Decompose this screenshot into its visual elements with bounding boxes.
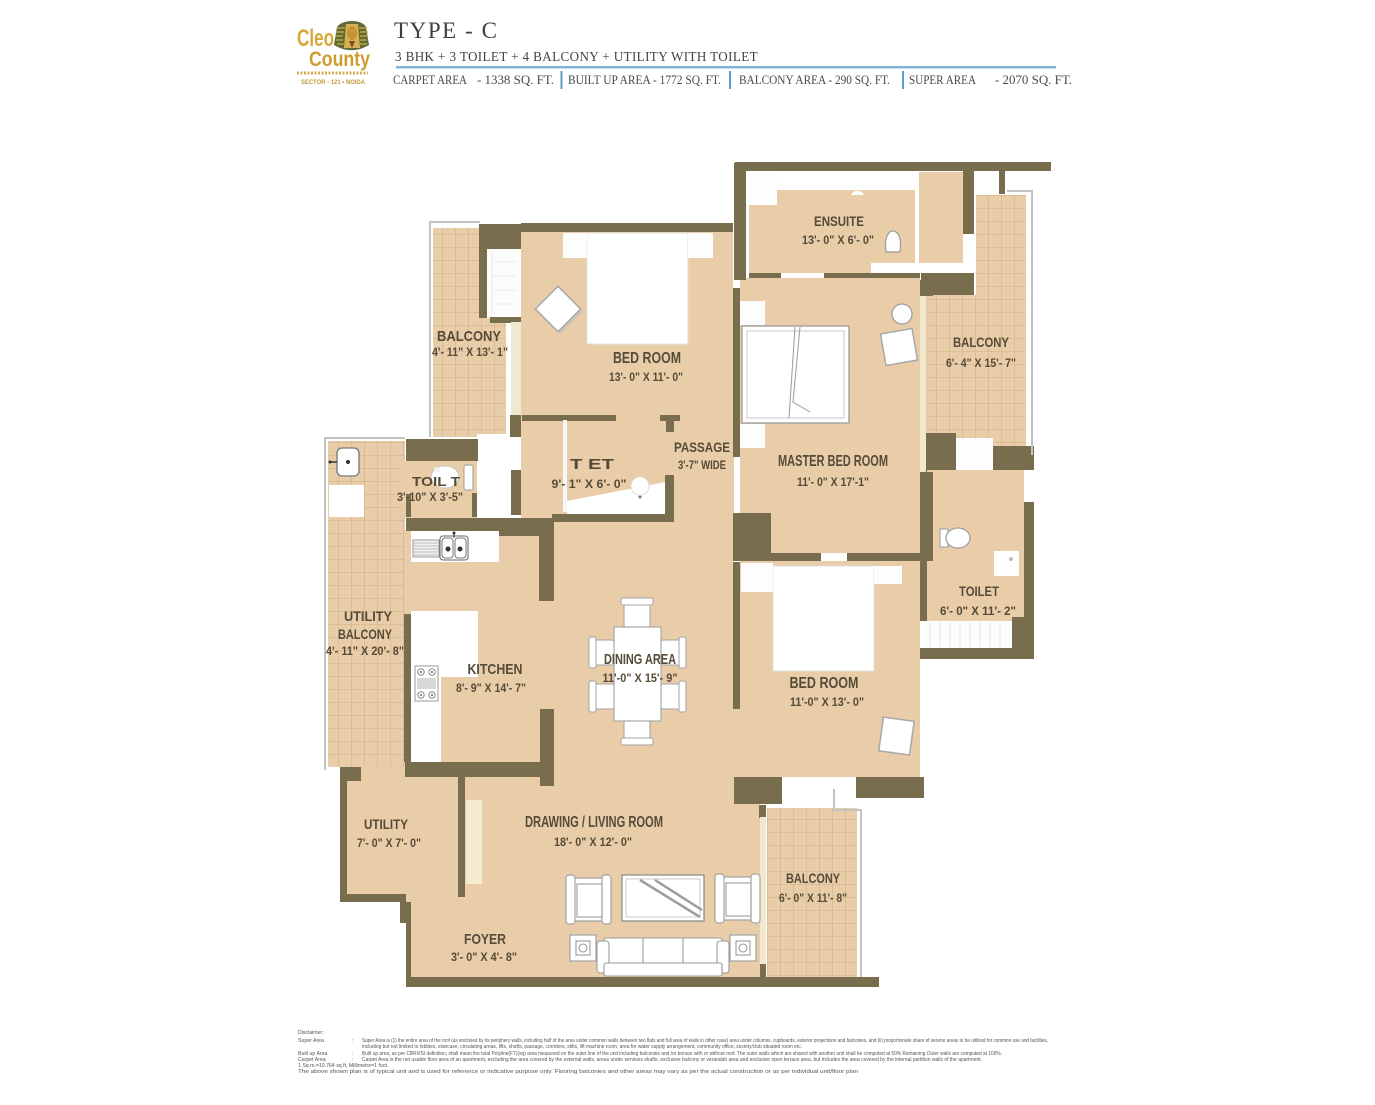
svg-text:Disclaimer:: Disclaimer: [298,1030,324,1036]
svg-text:13'- 0" X 11'- 0": 13'- 0" X 11'- 0" [609,370,683,384]
svg-text:MASTER BED ROOM: MASTER BED ROOM [778,453,888,470]
svg-text:6'- 0" X 11'- 8": 6'- 0" X 11'- 8" [779,891,847,905]
svg-text:County: County [309,48,370,71]
svg-text:KITCHEN: KITCHEN [468,661,523,678]
svg-text:SUPER AREA: SUPER AREA [909,73,976,87]
svg-text:3'-7" WIDE: 3'-7" WIDE [678,460,726,472]
svg-text:TOILET: TOILET [959,583,999,599]
svg-text:3'-10" X 3'-5": 3'-10" X 3'-5" [397,492,463,504]
svg-text:ENSUITE: ENSUITE [814,213,864,229]
svg-text:Carpet Area is the net usable: Carpet Area is the net usable floor area… [362,1057,982,1063]
svg-text:4'- 11" X 13'- 1": 4'- 11" X 13'- 1" [432,345,508,359]
svg-text:CARPET AREA: CARPET AREA [393,73,467,87]
svg-text:T ET: T ET [570,456,614,473]
svg-text:4'- 11" X 20'- 8": 4'- 11" X 20'- 8" [326,646,404,658]
svg-text:BALCONY AREA - 290 SQ. FT.: BALCONY AREA - 290 SQ. FT. [739,73,890,87]
svg-text:DINING AREA: DINING AREA [604,651,676,668]
svg-text:8'- 9" X 14'- 7": 8'- 9" X 14'- 7" [456,681,526,695]
svg-text:BED ROOM: BED ROOM [613,350,681,367]
svg-text:BALCONY: BALCONY [953,334,1010,350]
svg-text:SECTOR - 121 • NOIDA: SECTOR - 121 • NOIDA [301,79,365,86]
svg-text:BALCONY: BALCONY [437,328,501,345]
svg-text:18'- 0" X 12'- 0": 18'- 0" X 12'- 0" [554,835,632,849]
svg-text:6'- 4" X 15'- 7": 6'- 4" X 15'- 7" [946,356,1016,370]
svg-text:TYPE - C: TYPE - C [394,18,502,43]
svg-text:BALCONY: BALCONY [338,626,393,642]
svg-text:11'-0" X 15'- 9": 11'-0" X 15'- 9" [603,671,678,685]
svg-text:TOIL T: TOIL T [412,474,460,489]
svg-text:PASSAGE: PASSAGE [674,439,730,455]
svg-text:FOYER: FOYER [464,931,506,948]
svg-text::: : [352,1038,353,1044]
svg-text:Super Area: Super Area [298,1038,324,1044]
svg-text:- 2070 SQ. FT.: - 2070 SQ. FT. [995,73,1072,87]
svg-text:9'- 1" X 6'- 0": 9'- 1" X 6'- 0" [552,477,627,491]
svg-text:BUILT UP AREA - 1772 SQ. FT.: BUILT UP AREA - 1772 SQ. FT. [568,73,721,87]
svg-text:including but not limited to l: including but not limited to lobbies, st… [362,1044,802,1050]
svg-text:BALCONY: BALCONY [786,870,841,886]
svg-text:The above shown plan is of typ: The above shown plan is of typical unit … [298,1069,858,1075]
svg-text:UTILITY: UTILITY [344,608,393,624]
svg-text:- 1338 SQ. FT.: - 1338 SQ. FT. [477,73,554,87]
svg-text:BED ROOM: BED ROOM [790,675,859,692]
svg-text:7'- 0" X 7'- 0": 7'- 0" X 7'- 0" [357,836,421,850]
svg-text:6'- 0" X 11'- 2": 6'- 0" X 11'- 2" [940,604,1016,618]
svg-text:3 BHK + 3 TOILET + 4 BALCONY +: 3 BHK + 3 TOILET + 4 BALCONY + UTILITY W… [395,50,758,65]
svg-text:UTILITY: UTILITY [364,816,409,832]
svg-text:11'- 0" X 17'-1": 11'- 0" X 17'-1" [797,475,869,489]
svg-text:DRAWING / LIVING ROOM: DRAWING / LIVING ROOM [525,814,663,831]
svg-text:13'- 0" X 6'- 0": 13'- 0" X 6'- 0" [802,233,874,247]
svg-text:11'-0" X 13'- 0": 11'-0" X 13'- 0" [790,695,864,709]
svg-text:3'- 0" X 4'- 8": 3'- 0" X 4'- 8" [451,950,517,964]
